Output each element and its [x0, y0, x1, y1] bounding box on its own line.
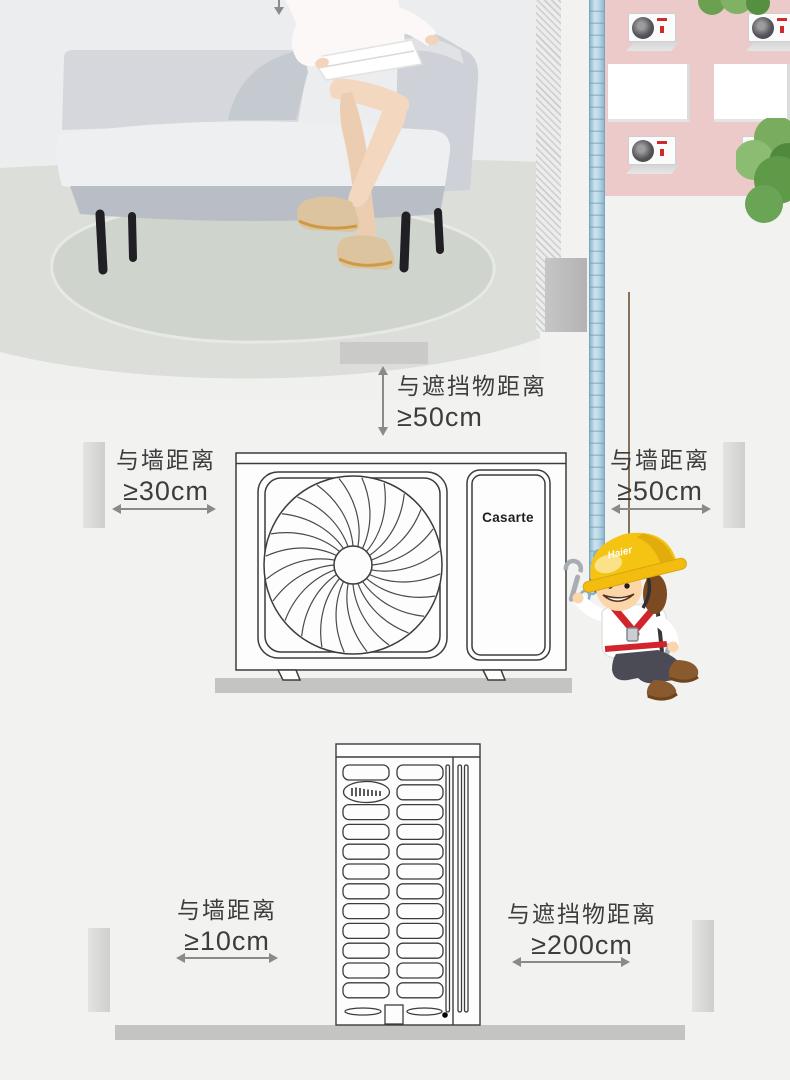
- clearance-text: 与遮挡物距离: [502, 900, 662, 929]
- fan-hub: [334, 546, 372, 584]
- fan-icon: [632, 140, 654, 162]
- wall-end-block: [545, 258, 587, 332]
- clearance-text: 与墙距离: [165, 896, 289, 925]
- wall-bar-mid-left: [83, 442, 105, 528]
- unit-foot: [483, 670, 505, 680]
- tree-icon: [736, 118, 790, 224]
- double-arrow-h-icon: [176, 952, 278, 964]
- rug: [52, 202, 495, 342]
- clearance-label-mid-left: 与墙距离 ≥30cm: [104, 446, 228, 509]
- sofa-leg: [404, 216, 406, 268]
- clearance-text: 与墙距离: [104, 446, 228, 475]
- sofa-leg: [438, 212, 440, 250]
- vertical-unit-diagram: [335, 743, 481, 1026]
- outdoor-unit-diagram: Casarte: [234, 450, 569, 695]
- building-window: [608, 64, 690, 122]
- down-arrow-icon: [274, 0, 284, 15]
- worker-mascot: Haier: [558, 520, 706, 706]
- ground-bar-bottom: [115, 1025, 685, 1040]
- obstruction-bar: [340, 342, 428, 364]
- wall-bar-bottom-right: [692, 920, 714, 1012]
- tree-icon: [692, 0, 772, 18]
- sofa-leg: [100, 214, 103, 270]
- clearance-text: 与墙距离: [600, 446, 720, 475]
- building-window: [714, 64, 790, 122]
- double-arrow-h-icon: [512, 956, 630, 968]
- fan-icon: [632, 17, 654, 39]
- clearance-label-bottom-right: 与遮挡物距离 ≥200cm: [502, 900, 662, 963]
- fan-icon: [752, 17, 774, 39]
- double-arrow-h-icon: [611, 503, 711, 515]
- building-ac-unit: [628, 13, 678, 55]
- building-ac-unit: [748, 13, 790, 55]
- double-arrow-v-icon: [377, 366, 389, 436]
- unit-foot: [278, 670, 300, 680]
- clearance-label-mid-right: 与墙距离 ≥50cm: [600, 446, 720, 509]
- screw-dot: [442, 1012, 448, 1018]
- double-arrow-h-icon: [112, 503, 216, 515]
- sofa-leg: [132, 216, 133, 258]
- clearance-text: 与遮挡物距离: [397, 372, 547, 401]
- clearance-label-top: 与遮挡物距离 ≥50cm: [397, 372, 547, 435]
- haier-logo-oval: [344, 782, 390, 803]
- harness-buckle: [627, 628, 638, 641]
- living-room-scene: [0, 0, 540, 400]
- building-ac-unit: [628, 136, 678, 178]
- product-installation-diagram: 与遮挡物距离 ≥50cm 与墙距离 ≥30cm 与墙距离 ≥50cm: [0, 0, 790, 1080]
- worker-legs: [612, 650, 698, 700]
- wall-bar-mid-right: [723, 442, 745, 528]
- wall-bar-bottom-left: [88, 928, 110, 1012]
- clearance-value: ≥50cm: [397, 401, 547, 435]
- brand-logo-casarte: Casarte: [482, 510, 534, 525]
- clearance-label-bottom-left: 与墙距离 ≥10cm: [165, 896, 289, 959]
